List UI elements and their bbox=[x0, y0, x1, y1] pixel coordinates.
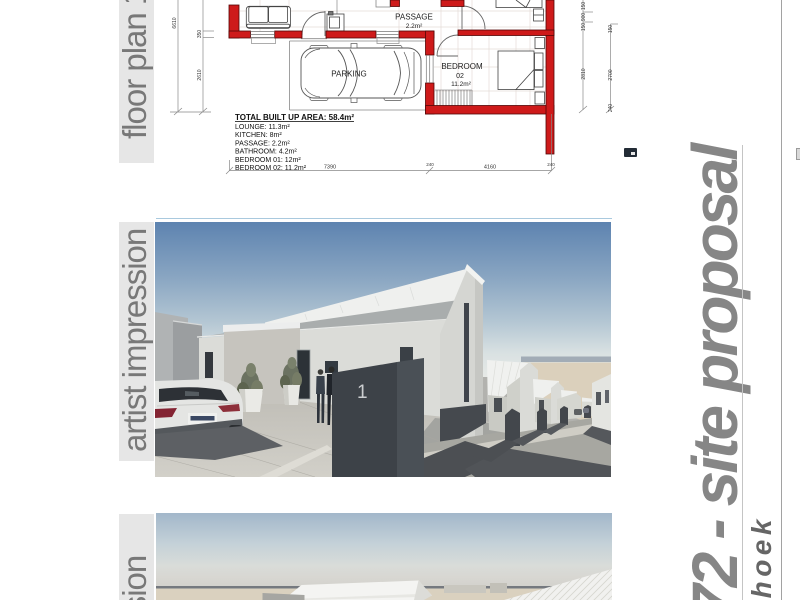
svg-text:KITCHEN: 8m²: KITCHEN: 8m² bbox=[235, 132, 282, 139]
svg-text:LOUNGE: 11.3m²: LOUNGE: 11.3m² bbox=[235, 124, 290, 131]
svg-text:1: 1 bbox=[357, 382, 368, 403]
svg-text:4160: 4160 bbox=[484, 165, 496, 171]
svg-text:240: 240 bbox=[426, 162, 434, 167]
svg-text:2700: 2700 bbox=[608, 69, 614, 80]
svg-text:150: 150 bbox=[581, 2, 587, 11]
svg-text:2.2m²: 2.2m² bbox=[406, 23, 423, 30]
svg-text:PASSAGE: PASSAGE bbox=[395, 13, 433, 22]
svg-text:2610: 2610 bbox=[197, 69, 203, 80]
svg-text:240: 240 bbox=[608, 104, 614, 113]
svg-text:7390: 7390 bbox=[324, 165, 336, 171]
svg-text:BATHROOM: 4.2m²: BATHROOM: 4.2m² bbox=[235, 149, 297, 156]
svg-text:BEDROOM: BEDROOM bbox=[441, 62, 483, 71]
svg-text:900: 900 bbox=[581, 13, 587, 22]
svg-text:02: 02 bbox=[456, 73, 464, 80]
svg-text:150: 150 bbox=[608, 25, 614, 34]
svg-text:240: 240 bbox=[547, 162, 555, 167]
svg-text:150: 150 bbox=[581, 23, 587, 32]
svg-text:2810: 2810 bbox=[581, 68, 587, 79]
svg-text:PASSAGE: 2.2m²: PASSAGE: 2.2m² bbox=[235, 140, 290, 147]
svg-text:6610: 6610 bbox=[172, 17, 178, 28]
svg-text:TOTAL BUILT UP AREA: 58.4m²: TOTAL BUILT UP AREA: 58.4m² bbox=[235, 113, 354, 122]
svg-text:BEDROOM 02: 11.2m²: BEDROOM 02: 11.2m² bbox=[235, 165, 307, 172]
svg-text:BEDROOM 01: 12m²: BEDROOM 01: 12m² bbox=[235, 157, 301, 164]
svg-text:11.2m²: 11.2m² bbox=[451, 81, 472, 88]
svg-text:350: 350 bbox=[197, 30, 203, 39]
svg-text:PARKING: PARKING bbox=[331, 70, 366, 79]
